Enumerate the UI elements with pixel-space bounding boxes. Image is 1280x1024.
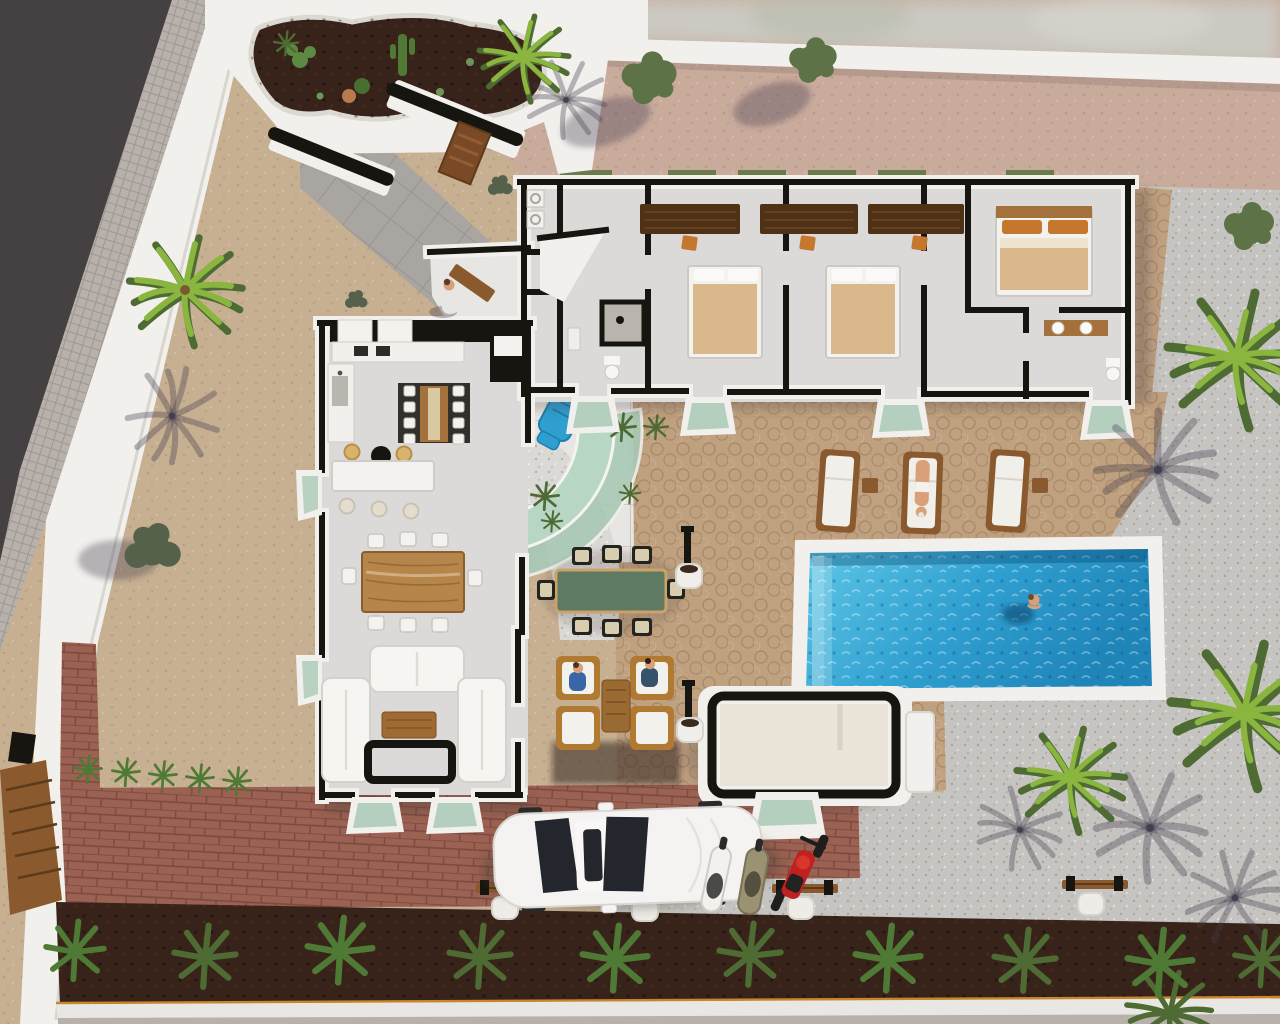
- brick-path-texture: [60, 642, 100, 788]
- swimmer-hair: [1028, 594, 1034, 600]
- gate-post: [8, 731, 36, 764]
- pool-house-side-counter: [906, 712, 934, 792]
- pool-water-texture: [806, 549, 1152, 689]
- pool-house-glass-door: [757, 800, 817, 826]
- white-car: [478, 797, 782, 917]
- indoor-dining: [398, 383, 470, 444]
- outdoor-table: [556, 570, 666, 612]
- pool-house-floor: [720, 704, 888, 786]
- ensuite-toilet: [1106, 367, 1120, 381]
- render-canvas: [0, 0, 1280, 1024]
- faucet: [338, 371, 343, 376]
- swimming-pool: [791, 536, 1166, 702]
- table-runner: [428, 388, 440, 440]
- sunroof: [583, 829, 603, 882]
- sink: [332, 376, 348, 406]
- sun-loungers: [815, 449, 1048, 535]
- master-bed: [996, 206, 1092, 296]
- site-plan-render: [0, 0, 1280, 1024]
- shower: [602, 302, 644, 344]
- toilet: [605, 365, 619, 379]
- side-table-2: [1032, 478, 1048, 493]
- shower-drain: [616, 316, 624, 324]
- bed-1: [688, 266, 762, 358]
- person-hair: [444, 279, 450, 285]
- basin: [568, 328, 580, 350]
- lounge-table: [602, 680, 630, 732]
- windshield: [601, 815, 652, 893]
- mirror-right: [602, 904, 617, 913]
- pool-step-2: [824, 558, 832, 686]
- side-table-1: [862, 478, 878, 493]
- bed-2: [826, 266, 900, 358]
- window-awnings: [640, 204, 964, 234]
- coffee-table: [382, 712, 436, 738]
- toilet-tank: [604, 356, 620, 365]
- pool-steps: [812, 556, 824, 686]
- mirror-left: [598, 802, 613, 811]
- terracotta-pot: [342, 89, 356, 103]
- kitchen-counter: [332, 342, 464, 362]
